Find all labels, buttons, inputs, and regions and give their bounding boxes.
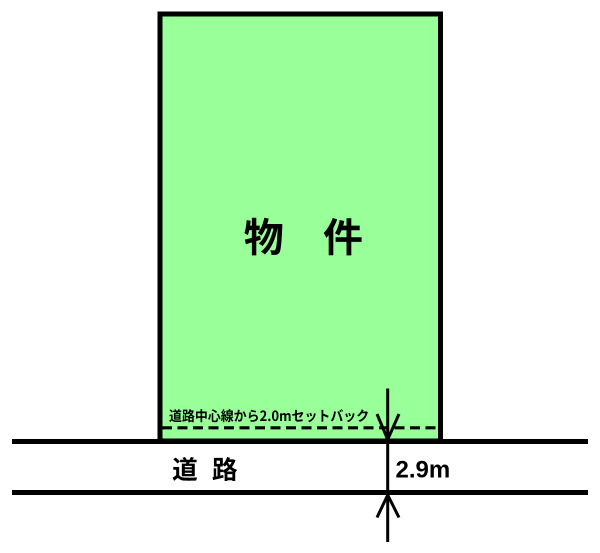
svg-text:2.9m: 2.9m: [396, 457, 451, 484]
